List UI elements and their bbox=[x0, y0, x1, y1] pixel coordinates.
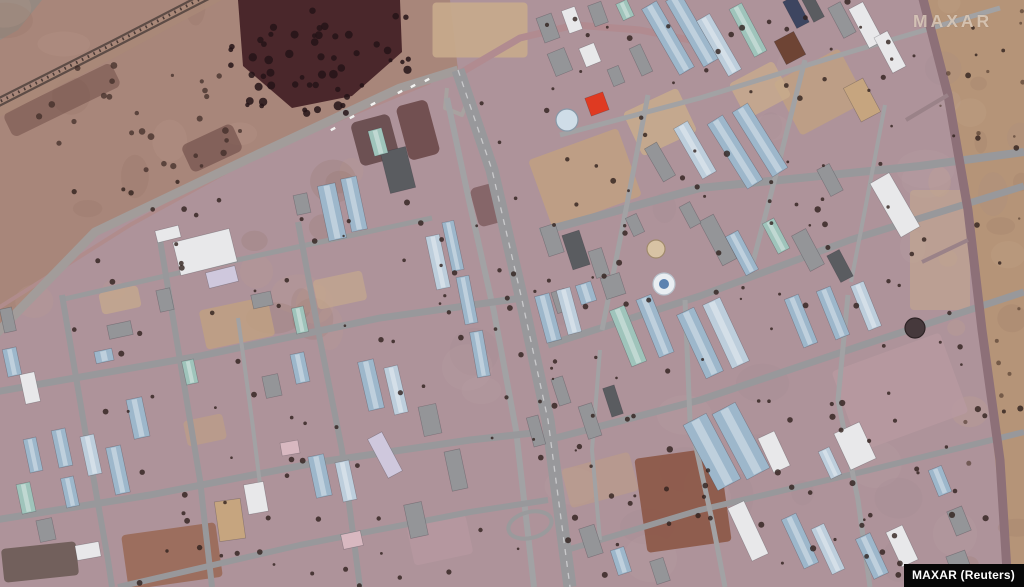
terrain-mottle bbox=[875, 478, 923, 519]
tree bbox=[514, 197, 518, 201]
tree bbox=[511, 271, 516, 276]
tree bbox=[880, 549, 886, 555]
tree bbox=[550, 367, 553, 370]
tree bbox=[986, 70, 989, 73]
tree bbox=[949, 512, 955, 518]
tree bbox=[999, 393, 1004, 398]
tree bbox=[285, 50, 293, 58]
tree bbox=[194, 213, 199, 218]
tree bbox=[161, 161, 167, 167]
tree bbox=[478, 528, 482, 532]
tree bbox=[184, 518, 190, 524]
tree bbox=[976, 131, 980, 135]
tree bbox=[898, 284, 901, 287]
tree bbox=[300, 75, 305, 80]
tree bbox=[787, 417, 793, 423]
tree bbox=[795, 203, 799, 207]
tree bbox=[575, 449, 577, 451]
tree bbox=[300, 458, 306, 464]
tree bbox=[953, 489, 958, 494]
tree bbox=[825, 245, 830, 250]
tree bbox=[863, 518, 866, 521]
tree bbox=[609, 493, 614, 498]
tree bbox=[859, 523, 864, 528]
tree bbox=[850, 480, 856, 486]
tree bbox=[137, 580, 143, 586]
tree bbox=[518, 352, 523, 357]
tree bbox=[667, 521, 672, 526]
tree bbox=[273, 563, 276, 566]
tree bbox=[757, 399, 761, 403]
tree bbox=[223, 501, 227, 505]
tree bbox=[235, 359, 240, 364]
tree bbox=[230, 456, 233, 459]
tree bbox=[893, 419, 897, 423]
tree bbox=[623, 301, 628, 306]
tree bbox=[497, 268, 501, 272]
tree bbox=[335, 87, 340, 92]
tree bbox=[331, 55, 337, 61]
tree bbox=[344, 94, 350, 100]
tree bbox=[202, 88, 208, 94]
satellite-image-frame: MAXAR MAXAR (Reuters) bbox=[0, 0, 1024, 587]
tree bbox=[175, 180, 179, 184]
tree bbox=[716, 250, 721, 255]
tree bbox=[589, 465, 592, 468]
tree bbox=[261, 74, 267, 80]
tree bbox=[622, 230, 627, 235]
tree bbox=[739, 25, 745, 31]
tree bbox=[135, 111, 139, 115]
tree bbox=[144, 167, 149, 172]
tree bbox=[128, 190, 133, 195]
tree bbox=[300, 217, 304, 221]
tree bbox=[945, 445, 948, 448]
tree bbox=[174, 242, 178, 246]
tree bbox=[267, 82, 275, 90]
tree bbox=[890, 125, 893, 128]
tree bbox=[360, 83, 365, 88]
tree bbox=[171, 74, 174, 77]
tree bbox=[897, 561, 903, 567]
storage-tank bbox=[905, 318, 925, 338]
tree bbox=[724, 151, 730, 157]
image-credit: MAXAR (Reuters) bbox=[904, 564, 1024, 587]
tree bbox=[259, 98, 267, 106]
tree bbox=[129, 130, 134, 135]
tree bbox=[49, 101, 56, 108]
tree bbox=[623, 224, 626, 227]
tree bbox=[715, 49, 720, 54]
terrain-mottle bbox=[947, 320, 965, 336]
tree bbox=[251, 392, 257, 398]
tree bbox=[625, 417, 630, 422]
tree bbox=[664, 487, 669, 492]
tree bbox=[151, 395, 155, 399]
tree bbox=[853, 303, 859, 309]
tree bbox=[864, 554, 869, 559]
tree bbox=[403, 15, 408, 20]
tree bbox=[982, 413, 987, 418]
terrain-mottle bbox=[121, 155, 149, 198]
tree bbox=[402, 259, 406, 263]
tree bbox=[494, 327, 498, 331]
tree bbox=[277, 304, 281, 308]
tree bbox=[165, 549, 168, 552]
tree bbox=[591, 414, 595, 418]
tree bbox=[127, 410, 130, 413]
tree bbox=[545, 23, 549, 27]
tree bbox=[606, 26, 609, 29]
tree bbox=[95, 258, 100, 263]
tree bbox=[886, 205, 889, 208]
tree bbox=[572, 515, 578, 521]
tree bbox=[789, 485, 794, 490]
tree bbox=[728, 32, 734, 38]
tree bbox=[200, 79, 204, 83]
tree bbox=[667, 446, 673, 452]
tree bbox=[193, 153, 198, 158]
tree bbox=[957, 344, 962, 349]
tree bbox=[255, 83, 263, 91]
tree bbox=[475, 224, 478, 227]
tree bbox=[179, 265, 185, 271]
tree bbox=[594, 356, 597, 359]
tree bbox=[267, 69, 275, 77]
tree bbox=[345, 31, 353, 39]
tree bbox=[498, 141, 502, 145]
tree bbox=[140, 470, 145, 475]
tree bbox=[285, 278, 290, 283]
tree bbox=[404, 200, 410, 206]
tree bbox=[101, 93, 107, 99]
tree bbox=[307, 82, 313, 88]
tree bbox=[321, 23, 329, 31]
tree bbox=[406, 57, 411, 62]
tree bbox=[224, 138, 229, 143]
tree bbox=[998, 261, 1001, 264]
terrain-mottle bbox=[991, 241, 1024, 268]
tree bbox=[1001, 49, 1005, 53]
tree bbox=[639, 116, 643, 120]
tree bbox=[544, 108, 549, 113]
tree bbox=[332, 33, 338, 39]
tree bbox=[343, 110, 349, 116]
tree bbox=[439, 264, 442, 267]
tree bbox=[228, 62, 234, 68]
tree bbox=[344, 324, 347, 327]
tree bbox=[830, 402, 834, 406]
tree bbox=[886, 279, 890, 283]
tree bbox=[148, 133, 155, 140]
tree bbox=[210, 311, 215, 316]
tree bbox=[403, 66, 411, 74]
tree bbox=[916, 471, 919, 474]
tree bbox=[249, 53, 257, 61]
tree bbox=[235, 551, 240, 556]
tree bbox=[829, 414, 835, 420]
tree bbox=[809, 224, 812, 227]
tree bbox=[290, 416, 294, 420]
tree bbox=[551, 87, 554, 90]
tree bbox=[768, 199, 772, 203]
tree bbox=[695, 513, 700, 518]
tree bbox=[963, 420, 967, 424]
tree bbox=[268, 32, 273, 37]
tree bbox=[1017, 406, 1023, 412]
tree bbox=[821, 197, 825, 201]
tree bbox=[830, 48, 833, 51]
tree bbox=[703, 195, 706, 198]
tree bbox=[586, 33, 590, 37]
tree bbox=[695, 184, 700, 189]
tree bbox=[446, 569, 451, 574]
tree bbox=[422, 384, 426, 388]
tree bbox=[693, 149, 696, 152]
tree bbox=[810, 545, 816, 551]
tree bbox=[859, 26, 862, 29]
tree bbox=[616, 260, 622, 266]
tree bbox=[610, 178, 616, 184]
tree bbox=[118, 351, 124, 357]
tree bbox=[111, 62, 118, 69]
tree bbox=[380, 552, 383, 555]
tree bbox=[439, 302, 442, 305]
tree bbox=[303, 422, 307, 426]
tree bbox=[266, 516, 271, 521]
tree bbox=[702, 495, 706, 499]
tree bbox=[182, 511, 186, 515]
tree bbox=[565, 537, 571, 543]
tree bbox=[665, 368, 670, 373]
tree bbox=[75, 65, 81, 71]
tree bbox=[150, 207, 155, 212]
tree bbox=[749, 90, 752, 93]
tree bbox=[769, 180, 773, 184]
tree bbox=[418, 220, 424, 226]
building bbox=[214, 498, 245, 541]
tree bbox=[311, 38, 319, 46]
tree bbox=[384, 47, 392, 55]
tree bbox=[714, 290, 719, 295]
tree bbox=[72, 327, 77, 332]
tree bbox=[507, 305, 513, 311]
tree bbox=[646, 298, 651, 303]
tree bbox=[392, 13, 399, 20]
tree bbox=[458, 335, 464, 341]
tree bbox=[270, 24, 277, 31]
tree bbox=[312, 238, 318, 244]
sand-patch bbox=[433, 3, 528, 58]
tree bbox=[398, 575, 402, 579]
tree bbox=[56, 141, 61, 146]
tree bbox=[975, 406, 981, 412]
storage-tank bbox=[659, 279, 669, 289]
tree bbox=[758, 522, 764, 528]
tree bbox=[822, 77, 826, 81]
tree bbox=[939, 341, 942, 344]
tree bbox=[1013, 135, 1016, 138]
tree bbox=[204, 94, 209, 99]
tree bbox=[740, 298, 742, 300]
terrain-mottle bbox=[152, 120, 187, 162]
tree bbox=[552, 223, 556, 227]
tree bbox=[1017, 307, 1020, 310]
tree bbox=[833, 538, 836, 541]
tree bbox=[939, 105, 941, 107]
tree bbox=[398, 390, 403, 395]
tree bbox=[533, 290, 536, 293]
tree bbox=[504, 395, 508, 399]
tree bbox=[914, 467, 919, 472]
tree bbox=[975, 54, 978, 57]
tree bbox=[706, 468, 710, 472]
tree bbox=[784, 27, 789, 32]
tree bbox=[881, 75, 886, 80]
terrain-mottle bbox=[975, 131, 988, 153]
tree bbox=[343, 567, 348, 572]
tree bbox=[708, 516, 713, 521]
tree bbox=[868, 513, 873, 518]
tree bbox=[797, 95, 803, 101]
tree bbox=[217, 73, 222, 78]
tree bbox=[197, 545, 202, 550]
building bbox=[280, 440, 300, 456]
tree bbox=[615, 377, 618, 380]
tree bbox=[214, 406, 217, 409]
tree bbox=[974, 222, 980, 228]
tree bbox=[803, 15, 808, 20]
tree bbox=[334, 101, 343, 110]
tree bbox=[878, 162, 882, 166]
tree bbox=[72, 189, 77, 194]
tree bbox=[965, 73, 971, 79]
tree bbox=[643, 133, 647, 137]
tree bbox=[200, 164, 204, 168]
tree bbox=[602, 274, 607, 279]
terrain-mottle bbox=[241, 231, 267, 251]
tree bbox=[552, 378, 554, 380]
tree bbox=[616, 543, 619, 546]
tree bbox=[946, 71, 951, 76]
tree bbox=[532, 438, 535, 441]
tree bbox=[538, 455, 544, 461]
tree bbox=[347, 219, 351, 223]
tree bbox=[672, 81, 675, 84]
tree bbox=[627, 35, 633, 41]
tree bbox=[378, 337, 383, 342]
tree bbox=[822, 164, 825, 167]
tree bbox=[374, 41, 380, 47]
tree bbox=[703, 483, 709, 489]
tree bbox=[480, 101, 484, 105]
tree bbox=[264, 56, 273, 65]
tree bbox=[770, 221, 774, 225]
tree bbox=[565, 157, 569, 161]
satellite-photo bbox=[0, 0, 1024, 587]
tree bbox=[552, 403, 558, 409]
tree bbox=[181, 206, 187, 212]
tree bbox=[882, 344, 886, 348]
tree bbox=[170, 163, 176, 169]
tree bbox=[313, 82, 319, 88]
tree bbox=[316, 516, 321, 521]
tree bbox=[517, 548, 520, 551]
tree bbox=[317, 53, 324, 60]
tree bbox=[338, 64, 346, 72]
tree bbox=[309, 8, 315, 14]
storage-tank bbox=[647, 240, 665, 258]
tree bbox=[139, 128, 146, 135]
tree bbox=[922, 237, 927, 242]
tree bbox=[895, 572, 901, 578]
tree bbox=[1008, 372, 1012, 376]
tree bbox=[217, 198, 222, 203]
tree bbox=[778, 293, 781, 296]
terrain-mottle bbox=[73, 200, 102, 217]
tree bbox=[377, 516, 381, 520]
tree bbox=[71, 119, 76, 124]
tree bbox=[197, 116, 203, 122]
tree bbox=[109, 78, 115, 84]
tree bbox=[583, 304, 589, 310]
tree bbox=[579, 70, 582, 73]
tree bbox=[808, 490, 813, 495]
tree bbox=[975, 135, 980, 140]
tree bbox=[291, 31, 299, 39]
tree bbox=[103, 409, 109, 415]
tree bbox=[892, 533, 897, 538]
tree bbox=[245, 103, 249, 107]
tree bbox=[839, 428, 844, 433]
tree bbox=[292, 81, 298, 87]
tree bbox=[182, 492, 188, 498]
tree bbox=[1002, 410, 1006, 414]
tree bbox=[254, 290, 257, 293]
tree bbox=[867, 89, 870, 92]
tree bbox=[222, 127, 229, 134]
tree bbox=[886, 40, 891, 45]
tree bbox=[249, 72, 255, 78]
tree bbox=[310, 572, 314, 576]
tree bbox=[1014, 145, 1020, 151]
tree bbox=[121, 187, 125, 191]
tree bbox=[947, 311, 951, 315]
tree bbox=[628, 501, 633, 506]
tree bbox=[627, 189, 630, 192]
tree bbox=[355, 463, 360, 468]
tree bbox=[781, 562, 784, 565]
terrain-mottle bbox=[986, 217, 1015, 235]
tree bbox=[704, 68, 708, 72]
tree bbox=[553, 359, 557, 363]
tree bbox=[110, 279, 116, 285]
tree bbox=[952, 134, 955, 137]
tree bbox=[577, 444, 582, 449]
tree bbox=[767, 20, 772, 25]
tree bbox=[538, 400, 542, 404]
tree bbox=[1018, 217, 1020, 219]
tree bbox=[505, 296, 510, 301]
tree bbox=[913, 54, 916, 57]
tree bbox=[631, 414, 636, 419]
tree bbox=[220, 150, 226, 156]
tree bbox=[285, 473, 290, 478]
tree bbox=[439, 237, 444, 242]
tree bbox=[666, 24, 670, 28]
tree bbox=[335, 425, 339, 429]
tree bbox=[995, 339, 999, 343]
